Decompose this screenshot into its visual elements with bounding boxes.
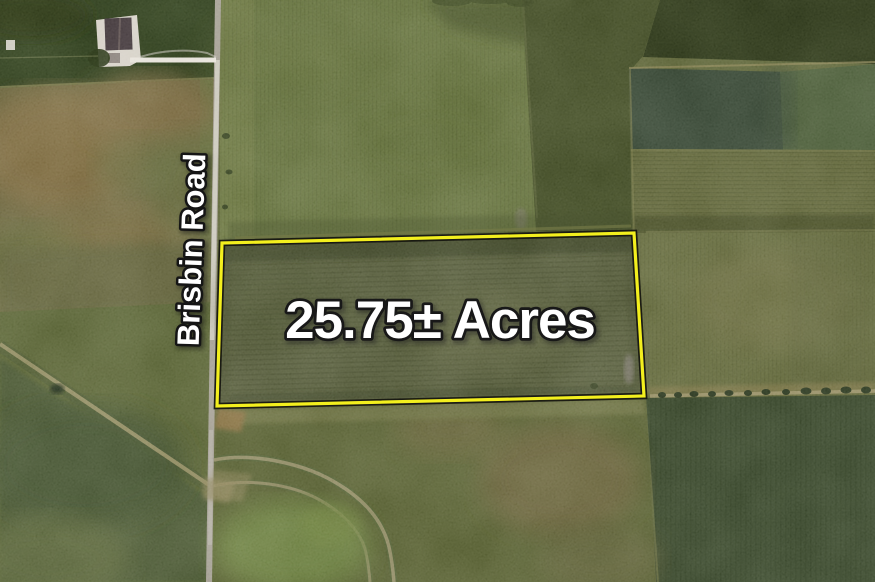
svg-text:25.75± Acres: 25.75± Acres: [285, 291, 595, 350]
svg-text:Brisbin Road: Brisbin Road: [171, 153, 213, 347]
